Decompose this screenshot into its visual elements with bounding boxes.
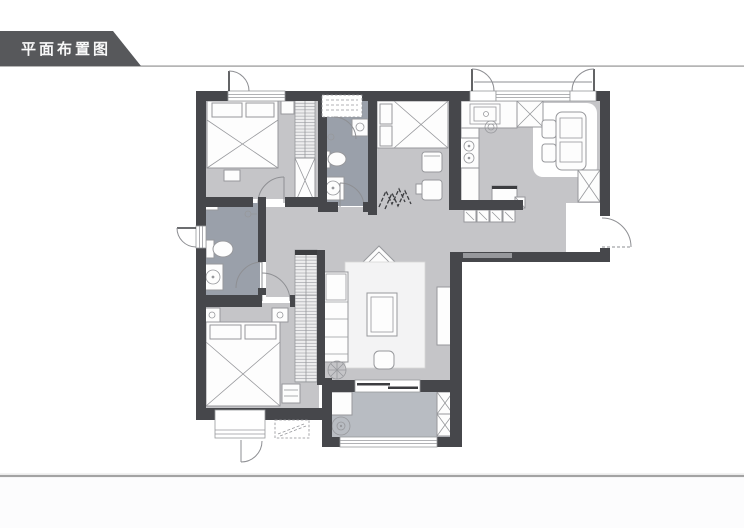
window-icon (196, 226, 206, 248)
ac-unit-icon (275, 420, 309, 438)
bar-dishes-icon (464, 210, 515, 222)
stool-icon (282, 384, 300, 403)
casement-window-icon (472, 69, 494, 91)
window-icon (228, 91, 285, 101)
stool-icon (374, 351, 394, 369)
dining-table-icon (556, 112, 586, 170)
pillow-icon (210, 325, 241, 339)
chair-icon (422, 152, 442, 172)
window-icon (570, 91, 596, 101)
entry-door-opening (600, 216, 610, 248)
footer-rule-soft (0, 474, 744, 475)
nightstand-icon (204, 308, 220, 322)
toilet-icon (213, 241, 233, 257)
window-icon (496, 91, 570, 101)
toilet-icon (328, 152, 346, 166)
wall-inset (463, 253, 512, 258)
pillow-icon (380, 104, 392, 124)
pillow-icon (245, 325, 276, 339)
entry-foyer-floor (566, 203, 600, 252)
pillow-icon (246, 103, 274, 117)
page-title: 平面布置图 (21, 40, 111, 58)
sliding-door-icon (355, 380, 420, 392)
window-icon (340, 437, 437, 447)
door-swing-icon (241, 441, 262, 462)
shoe-cabinet-icon (422, 180, 442, 200)
corner-sink-icon (352, 119, 368, 136)
window-icon (470, 91, 496, 101)
floor-plan-canvas: 平面布置图 (0, 0, 744, 528)
pillow-icon (380, 126, 392, 146)
sofa-icon (324, 272, 348, 362)
ceiling-fan-icon (328, 361, 346, 379)
casement-window-icon (229, 71, 249, 91)
chair-icon (542, 120, 556, 138)
page: 平面布置图 (0, 0, 744, 528)
chair-icon (542, 144, 556, 162)
bay-window-icon (215, 410, 265, 462)
coffee-table-icon (367, 293, 397, 336)
casement-window-icon (177, 228, 196, 247)
bench-icon (224, 170, 240, 181)
casement-window-icon (572, 69, 594, 91)
cabinet-icon (330, 392, 352, 415)
tv-cabinet-icon (437, 287, 452, 345)
footer-strip (0, 477, 744, 528)
nightstand-icon (281, 101, 294, 114)
footer-rule (0, 475, 744, 477)
nightstand-icon (272, 308, 288, 322)
pillow-icon (212, 103, 242, 117)
